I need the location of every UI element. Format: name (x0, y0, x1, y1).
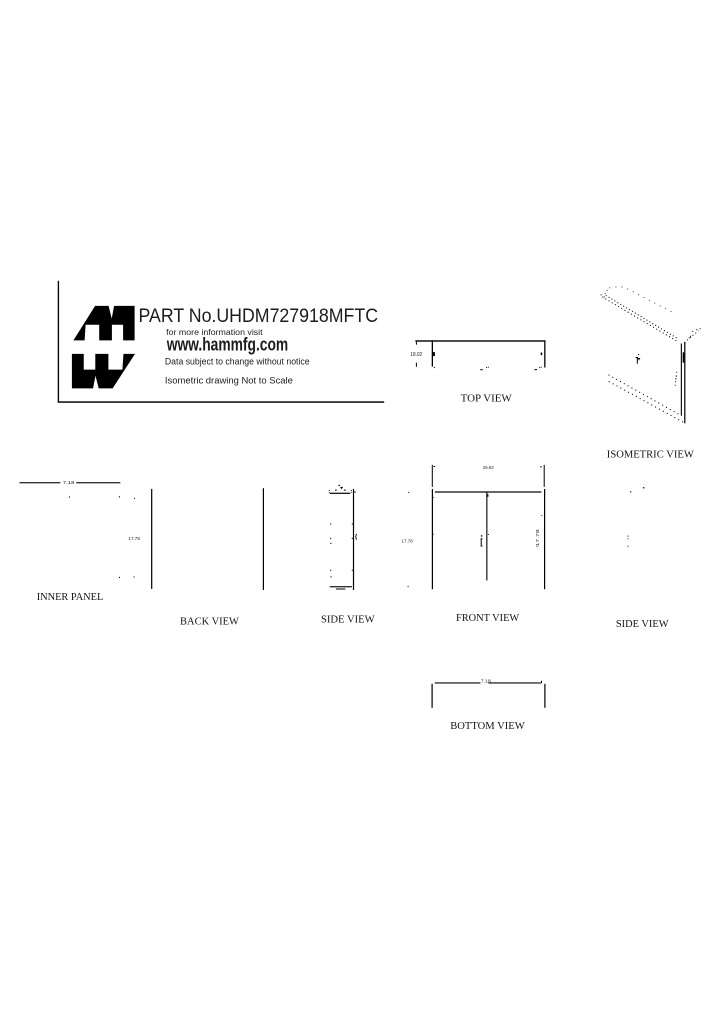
svg-text:ISOMETRIC VIEW: ISOMETRIC VIEW (607, 449, 695, 461)
svg-text:www.hammfg.com: www.hammfg.com (166, 334, 288, 355)
svg-text:SIDE VIEW: SIDE VIEW (321, 614, 375, 626)
svg-text:SIDE VIEW: SIDE VIEW (616, 618, 669, 630)
svg-text:BOTTOM VIEW: BOTTOM VIEW (450, 720, 525, 732)
svg-text:BACK VIEW: BACK VIEW (180, 615, 239, 627)
svg-text:7.18: 7.18 (481, 678, 491, 683)
svg-text:FRONT VIEW: FRONT VIEW (456, 612, 520, 624)
svg-text:Isometric drawing Not to Scale: Isometric drawing Not to Scale (165, 375, 293, 386)
svg-text:26.63: 26.63 (483, 465, 494, 470)
svg-text:TOP VIEW: TOP VIEW (461, 392, 513, 404)
svg-text:7.18: 7.18 (63, 480, 75, 485)
svg-text:17.78: 17.78 (535, 529, 540, 547)
svg-text:PART No.UHDM727918MFTC: PART No.UHDM727918MFTC (139, 306, 379, 327)
svg-text:INNER PANEL: INNER PANEL (37, 591, 104, 603)
svg-text:17.78: 17.78 (402, 538, 414, 543)
svg-text:17.78: 17.78 (128, 536, 140, 541)
svg-text:Data subject to change without: Data subject to change without notice (165, 356, 310, 367)
svg-text:18.02: 18.02 (410, 352, 422, 358)
